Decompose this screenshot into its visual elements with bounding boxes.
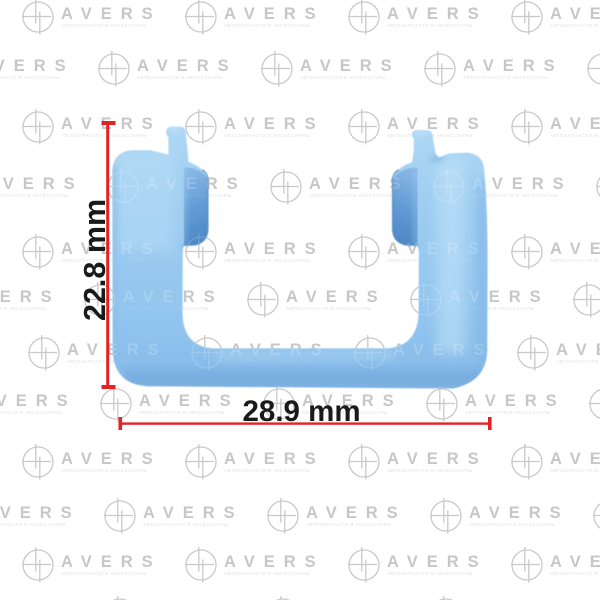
svg-text:22.8 mm: 22.8 mm — [78, 199, 112, 321]
svg-text:28.9 mm: 28.9 mm — [243, 395, 361, 428]
